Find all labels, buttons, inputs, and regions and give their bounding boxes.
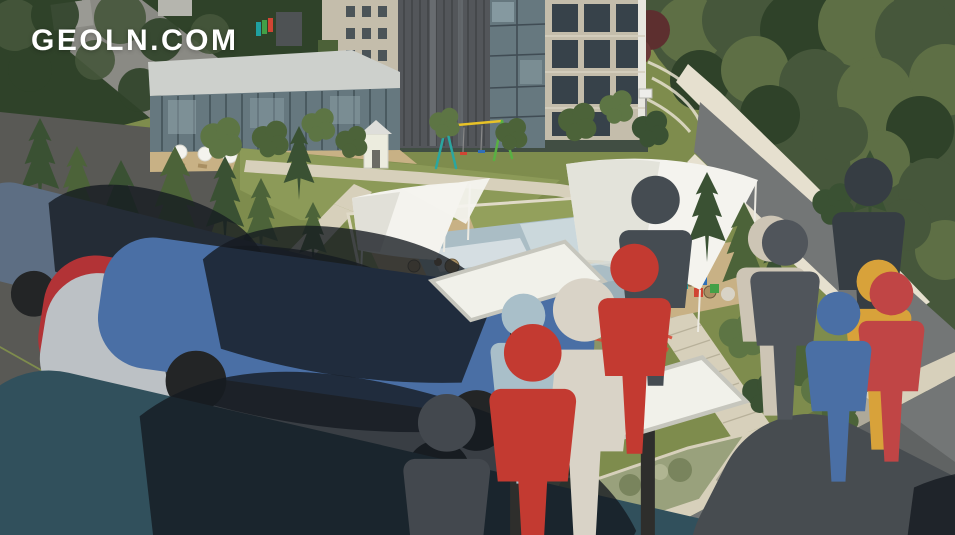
watermark: GEOLN.COM xyxy=(31,24,239,58)
scene-canvas xyxy=(0,0,955,535)
architectural-rendering: GEOLN.COM xyxy=(0,0,955,535)
